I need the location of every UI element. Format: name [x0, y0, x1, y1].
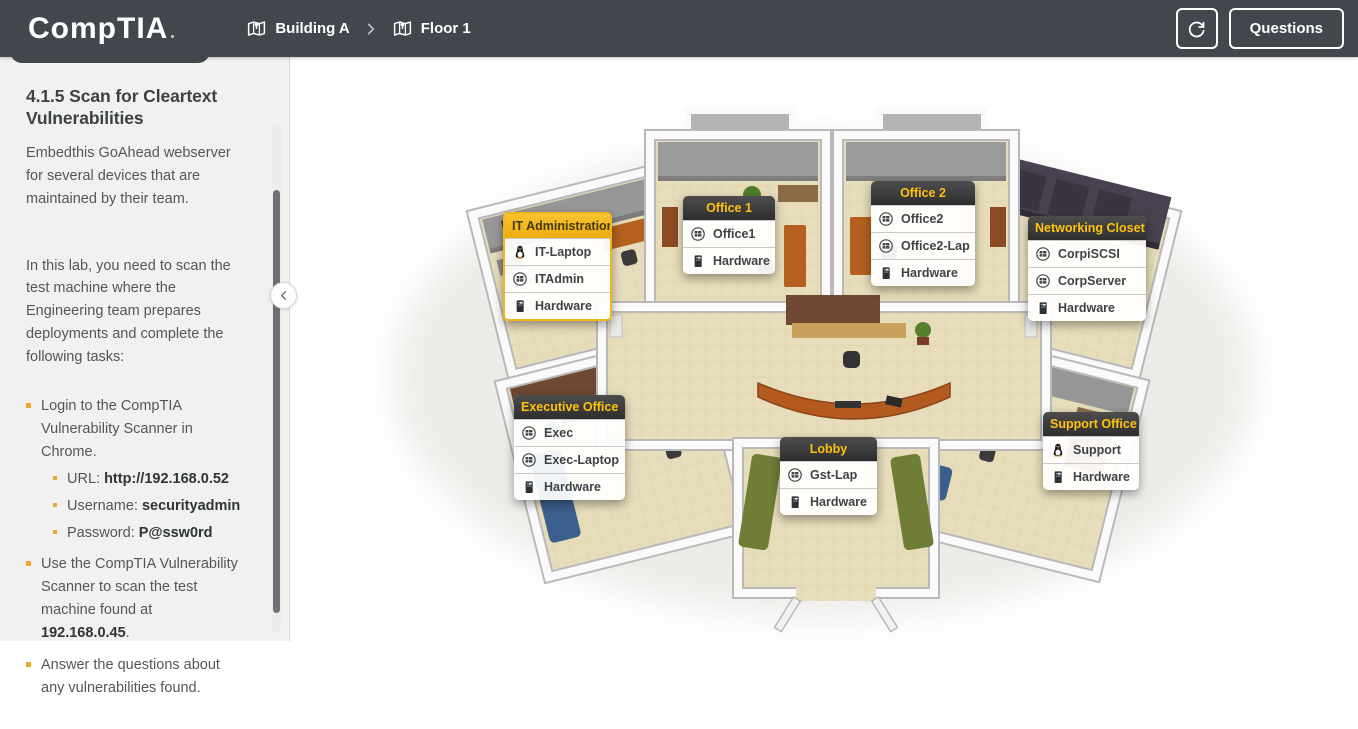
device-label: Office2 [901, 212, 943, 226]
windows-icon [521, 452, 537, 468]
device-label: Hardware [810, 495, 867, 509]
hardware-icon [690, 253, 706, 269]
hardware-icon [787, 494, 803, 510]
topbar-actions: Questions [1176, 8, 1344, 49]
room-panel-support-office: Support Office Support Hardware [1043, 412, 1139, 490]
chevron-right-icon [364, 22, 378, 36]
device-row[interactable]: CorpServer [1028, 267, 1146, 294]
breadcrumb-item-building[interactable]: Building A [246, 18, 349, 39]
refresh-button[interactable] [1176, 8, 1218, 49]
device-row[interactable]: Hardware [1043, 463, 1139, 490]
sidebar-collapse-button[interactable] [270, 282, 297, 309]
windows-icon [1035, 246, 1051, 262]
hardware-icon [878, 265, 894, 281]
device-row[interactable]: Office2-Lap [871, 232, 975, 259]
subtask-value: http://192.168.0.52 [104, 471, 229, 487]
device-row[interactable]: Exec-Laptop [514, 446, 625, 473]
device-row[interactable]: Office2 [871, 205, 975, 232]
task-text: Answer the questions about any vulnerabi… [41, 657, 220, 696]
task-value: 192.168.0.45 [41, 625, 126, 641]
room-title: Lobby [780, 437, 877, 461]
device-label: Office1 [713, 227, 755, 241]
device-label: IT-Laptop [535, 245, 591, 259]
hardware-icon [521, 479, 537, 495]
device-label: CorpServer [1058, 274, 1126, 288]
device-row[interactable]: IT-Laptop [505, 238, 610, 265]
room-panel-office-2: Office 2 Office2 Office2-Lap Hardware [871, 181, 975, 286]
windows-icon [690, 226, 706, 242]
breadcrumb-label: Building A [275, 20, 349, 37]
subtask-label: Username: [67, 498, 142, 514]
task-item: Answer the questions about any vulnerabi… [26, 654, 241, 700]
device-row[interactable]: Hardware [871, 259, 975, 286]
subtask-label: Password: [67, 525, 139, 541]
task-item: Use the CompTIA Vulnerability Scanner to… [26, 553, 241, 645]
device-row[interactable]: Hardware [1028, 294, 1146, 321]
device-row[interactable]: Office1 [683, 220, 775, 247]
device-label: CorpiSCSI [1058, 247, 1120, 261]
room-panel-executive-office: Executive Office Exec Exec-Laptop Hardwa… [514, 395, 625, 500]
breadcrumb-item-floor[interactable]: Floor 1 [392, 18, 471, 39]
comptia-logo: CompTIA [28, 12, 174, 46]
questions-button[interactable]: Questions [1229, 8, 1344, 49]
floor-plan-image [290, 57, 1358, 641]
subtask-value: securityadmin [142, 498, 240, 514]
device-row[interactable]: Hardware [514, 473, 625, 500]
device-row[interactable]: Hardware [780, 488, 877, 515]
topbar: CompTIA Building A Floor 1 Questions [0, 0, 1358, 57]
room-title: Office 1 [683, 196, 775, 220]
subtask-item: Username: securityadmin [53, 495, 241, 518]
task-item: Login to the CompTIA Vulnerability Scann… [26, 395, 241, 544]
room-title: Executive Office [514, 395, 625, 419]
room-title: Office 2 [871, 181, 975, 205]
subtask-item: Password: P@ssw0rd [53, 522, 241, 545]
device-label: ITAdmin [535, 272, 584, 286]
room-title: IT Administration [505, 214, 610, 238]
floor-plan-area: IT Administration IT-Laptop ITAdmin Hard… [290, 57, 1358, 641]
breadcrumb: Building A Floor 1 [246, 18, 470, 39]
task-text: . [126, 625, 130, 641]
sidebar-scrollbar-thumb[interactable] [273, 190, 280, 613]
room-panel-networking-closet: Networking Closet CorpiSCSI CorpServer H… [1028, 216, 1146, 321]
task-list: Login to the CompTIA Vulnerability Scann… [26, 395, 241, 700]
device-label: Gst-Lap [810, 468, 857, 482]
lab-title: 4.1.5 Scan for Cleartext Vulnerabilities [26, 85, 241, 130]
hardware-icon [1050, 469, 1066, 485]
room-panel-office-1: Office 1 Office1 Hardware [683, 196, 775, 274]
chevron-left-icon [278, 290, 289, 301]
map-icon [392, 18, 413, 39]
device-row[interactable]: Hardware [505, 292, 610, 319]
device-label: Exec-Laptop [544, 453, 619, 467]
subtask-item: URL: http://192.168.0.52 [53, 468, 241, 491]
room-panel-lobby: Lobby Gst-Lap Hardware [780, 437, 877, 515]
device-row[interactable]: Exec [514, 419, 625, 446]
device-row[interactable]: CorpiSCSI [1028, 240, 1146, 267]
room-title: Support Office [1043, 412, 1139, 436]
subtask-list: URL: http://192.168.0.52 Username: secur… [41, 468, 241, 545]
linux-icon [512, 244, 528, 260]
hardware-icon [512, 298, 528, 314]
subtask-value: P@ssw0rd [139, 525, 213, 541]
device-label: Hardware [544, 480, 601, 494]
linux-icon [1050, 442, 1066, 458]
room-title: Networking Closet [1028, 216, 1146, 240]
device-row[interactable]: ITAdmin [505, 265, 610, 292]
map-icon [246, 18, 267, 39]
refresh-icon [1186, 18, 1207, 39]
device-row[interactable]: Gst-Lap [780, 461, 877, 488]
task-text: Use the CompTIA Vulnerability Scanner to… [41, 556, 238, 618]
device-row[interactable]: Hardware [683, 247, 775, 274]
device-label: Hardware [713, 254, 770, 268]
device-label: Hardware [901, 266, 958, 280]
windows-icon [512, 271, 528, 287]
subtask-label: URL: [67, 471, 104, 487]
lab-description: In this lab, you need to scan the test m… [26, 255, 241, 370]
device-label: Exec [544, 426, 573, 440]
device-label: Hardware [1073, 470, 1130, 484]
device-row[interactable]: Support [1043, 436, 1139, 463]
lab-intro: Embedthis GoAhead webserver for several … [26, 142, 241, 211]
windows-icon [787, 467, 803, 483]
hardware-icon [1035, 300, 1051, 316]
windows-icon [878, 211, 894, 227]
room-panel-it-administration: IT Administration IT-Laptop ITAdmin Hard… [503, 212, 612, 321]
device-label: Office2-Lap [901, 239, 970, 253]
sidebar: 4.1.5 Scan for Cleartext Vulnerabilities… [0, 57, 290, 641]
task-text: Login to the CompTIA Vulnerability Scann… [41, 398, 193, 460]
windows-icon [521, 425, 537, 441]
device-label: Hardware [1058, 301, 1115, 315]
breadcrumb-label: Floor 1 [421, 20, 471, 37]
windows-icon [1035, 273, 1051, 289]
device-label: Support [1073, 443, 1121, 457]
device-label: Hardware [535, 299, 592, 313]
windows-icon [878, 238, 894, 254]
